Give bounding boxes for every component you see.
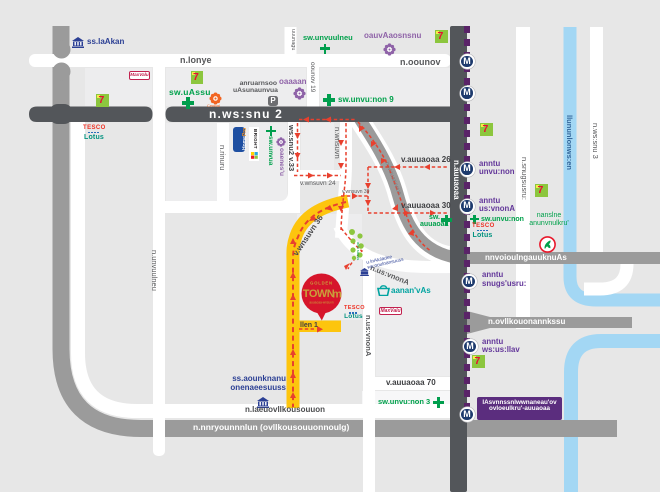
svg-text:TOWN: TOWN xyxy=(303,288,335,300)
svg-text:m: m xyxy=(332,289,342,301)
svg-text:auuaoaa-wnsuvn: auuaoaa-wnsuvn xyxy=(309,301,334,305)
svg-text:GOLDEN: GOLDEN xyxy=(310,281,333,286)
svg-text:aou suuss: aou suuss xyxy=(356,242,361,260)
